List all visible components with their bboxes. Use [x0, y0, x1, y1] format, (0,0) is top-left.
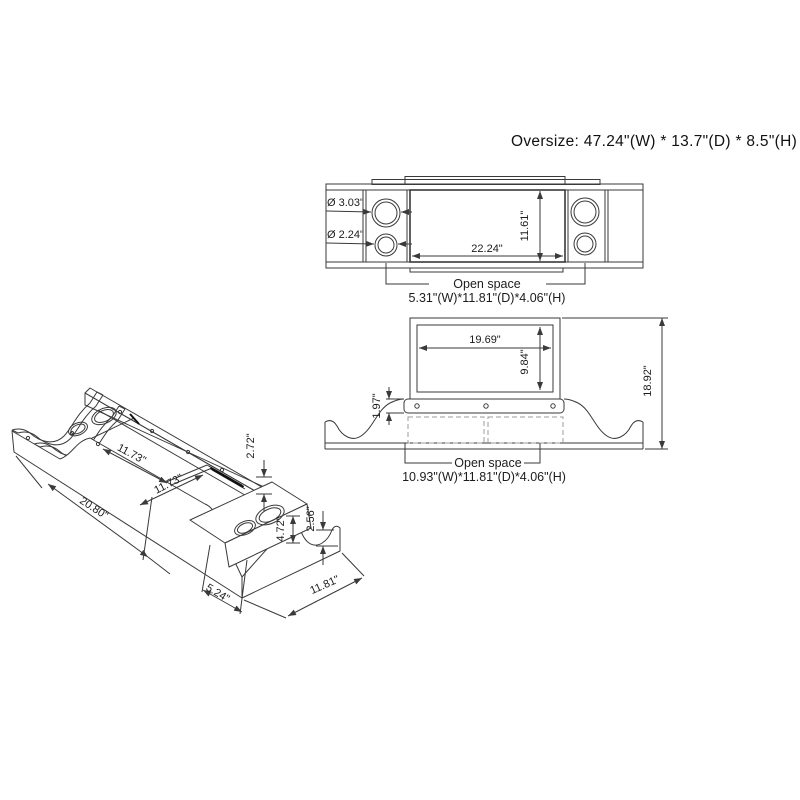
cup-holder-left-large [372, 199, 400, 227]
front-view-labels: 19.69" 9.84" 1.97" 18.92" Open space 10.… [371, 334, 654, 484]
front-open-space-size: 10.93"(W)*11.81"(D)*4.06"(H) [402, 470, 566, 484]
screw-hole [551, 404, 555, 408]
top-open-space-label: Open space [453, 277, 520, 291]
top-open-space-size: 5.31"(W)*11.81"(D)*4.06"(H) [409, 291, 566, 305]
dim-riser-width: 19.69" [469, 334, 501, 346]
dim-ledge-height: 1.97" [371, 393, 383, 418]
dim-hole-small: Ø 2.24" [327, 229, 364, 241]
dim-hole-large: Ø 3.03" [327, 197, 364, 209]
top-view-outline [326, 184, 643, 268]
cup-holder-right-large [571, 198, 599, 226]
hidden-open-space [408, 417, 563, 443]
left-wing-curve [325, 399, 404, 438]
oversize-title: Oversize: 47.24"(W) * 13.7"(D) * 8.5"(H) [511, 133, 797, 151]
dim-riser-height: 9.84" [519, 349, 531, 374]
cup-holder-right-small [574, 233, 596, 255]
dim-total-height: 18.92" [642, 365, 654, 397]
back-tab-center [405, 177, 565, 185]
dim-end-cap-height: 2.56" [305, 506, 317, 531]
right-wing-curve [564, 399, 643, 438]
screw-hole [484, 404, 488, 408]
screw-hole [415, 404, 419, 408]
front-open-space-label: Open space [454, 456, 521, 470]
technical-drawing-canvas: Ø 3.03" Ø 2.24" 22.24" 11.61" Open space… [0, 0, 800, 800]
drawing-sheet: Oversize: 47.24"(W) * 13.7"(D) * 8.5"(H) [0, 0, 800, 800]
dim-wall-height: 2.72" [245, 433, 257, 458]
cup-holder-left-small [375, 234, 397, 256]
dim-opening-width: 22.24" [471, 243, 503, 255]
top-view [326, 177, 643, 285]
front-tab [410, 268, 563, 272]
riser-outline [410, 318, 560, 399]
dim-opening-depth: 11.61" [519, 211, 531, 242]
dim-depth: 11.81" [308, 574, 341, 597]
dim-platform-height: 4.72" [275, 516, 287, 541]
iso-view [12, 388, 364, 618]
